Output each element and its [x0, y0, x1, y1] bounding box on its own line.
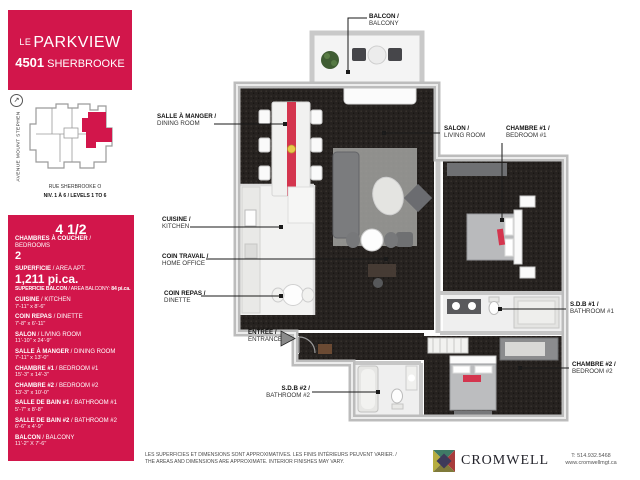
cromwell-logo-icon [433, 450, 455, 472]
balcony-room [312, 33, 422, 90]
doormat [318, 344, 332, 354]
label-living-room: SALON / LIVING ROOM [444, 125, 485, 139]
disclaimer-fr: LES SUPERFICIES ET DIMENSIONS SONT APPRO… [145, 452, 397, 459]
label-balcony: BALCON / BALCONY [369, 13, 399, 27]
nightstand [520, 196, 535, 207]
fridge-pantry [288, 187, 314, 223]
balcony-table [368, 46, 386, 64]
label-home-office: COIN TRAVAIL / HOME OFFICE [162, 253, 208, 267]
label-bedroom1: CHAMBRE #1 / BEDROOM #1 [506, 125, 550, 139]
office-chair [373, 278, 383, 288]
side-table [361, 229, 383, 251]
nightstand [520, 267, 535, 278]
dinette-chair [302, 288, 314, 302]
louvered-closet [428, 338, 468, 353]
cromwell-wordmark: CROMWELL [461, 453, 549, 469]
headboard [514, 210, 522, 264]
label-bedroom2: CHAMBRE #2 / BEDROOM #2 [572, 361, 616, 375]
label-bathroom1: S.D.B #1 / BATHROOM #1 [570, 301, 614, 315]
toilet [392, 389, 403, 403]
label-bathroom2: S.D.B #2 / BATHROOM #2 [262, 385, 310, 399]
chair [346, 232, 360, 248]
cromwell-logo: CROMWELL [433, 450, 549, 472]
chair [384, 232, 398, 248]
label-dinette: COIN REPAS / DINETTE [164, 290, 205, 304]
stove [245, 244, 257, 258]
toilet [489, 302, 499, 315]
sink [245, 210, 256, 226]
label-entrance: ENTRÉE / ENTRANCE [248, 329, 282, 343]
accent-pillow [463, 375, 481, 382]
floor-plan [0, 0, 640, 480]
office-desk [368, 264, 396, 277]
ottoman [396, 232, 413, 247]
disclaimer-en: THE AREAS AND DIMENSIONS ARE APPROXIMATE… [145, 459, 397, 466]
headboard [450, 356, 496, 364]
label-dining-room: SALLE À MANGER / DINING ROOM [157, 113, 216, 127]
website-link[interactable]: www.cromwellmgt.ca [548, 460, 634, 467]
contact-block: T: 514.932.5468 www.cromwellmgt.ca [548, 453, 634, 467]
balcony-chair [352, 48, 366, 61]
phone-number: T: 514.932.5468 [548, 453, 634, 460]
dinette-table [283, 285, 304, 306]
closet [447, 163, 507, 176]
balcony-chair [388, 48, 402, 61]
label-kitchen: CUISINE / KITCHEN [162, 216, 191, 230]
hall-floor [298, 333, 424, 360]
disclaimer: LES SUPERFICIES ET DIMENSIONS SONT APPRO… [145, 452, 397, 465]
sofa [333, 152, 359, 238]
plant [321, 51, 339, 69]
